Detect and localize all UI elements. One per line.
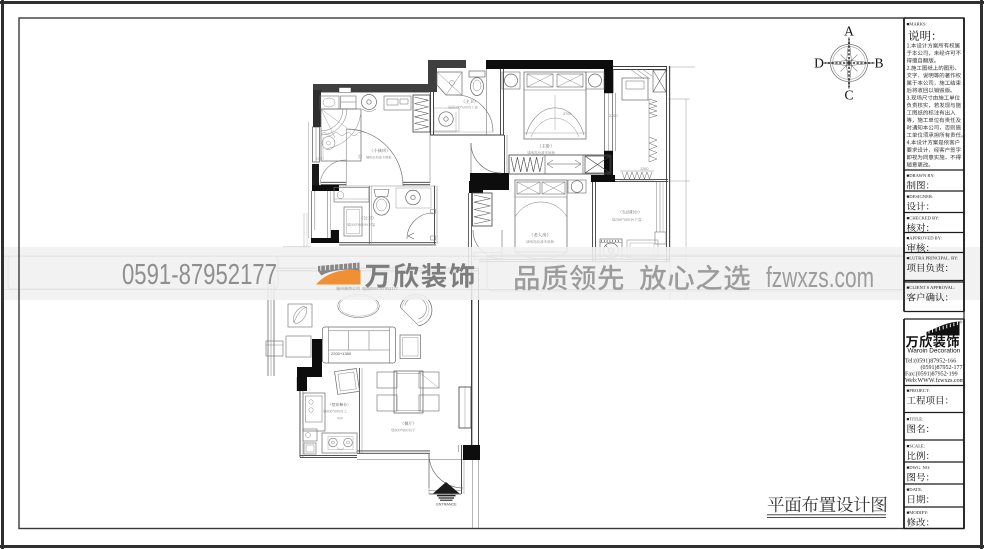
svg-text:Waroin Decoration: Waroin Decoration [908,348,961,355]
svg-text:■SCALE:: ■SCALE: [907,444,926,449]
svg-text:3700: 3700 [563,112,571,116]
svg-text:C: C [844,88,853,103]
svg-text:A: A [844,24,854,39]
svg-text:■DWG. NO:: ■DWG. NO: [907,465,931,470]
svg-text:■PROJECT:: ■PROJECT: [907,388,930,393]
svg-text:®: ® [960,320,963,325]
svg-text:■APPROVED BY:: ■APPROVED BY: [907,236,942,241]
svg-text:■DRAWN BY:: ■DRAWN BY: [907,173,935,178]
svg-text:Fax:(0591)87952-199: Fax:(0591)87952-199 [905,371,958,378]
svg-text:■MARKS:: ■MARKS: [907,22,927,27]
svg-text:■MODIFY:: ■MODIFY: [907,510,929,515]
svg-text:D: D [814,56,824,71]
svg-text:■TITLE:: ■TITLE: [907,417,924,422]
svg-text:2200+1380: 2200+1380 [331,351,352,356]
svg-text:fzwxzs.com: fzwxzs.com [766,262,874,294]
svg-text:Web:WWW.fzwxzs.com: Web:WWW.fzwxzs.com [905,377,965,384]
svg-text:Tel:(0591)87952-166: Tel:(0591)87952-166 [905,358,956,365]
svg-text:■DATE:: ■DATE: [907,487,923,492]
svg-text:■LUTRA PRINCIPAL. BY:: ■LUTRA PRINCIPAL. BY: [907,256,959,261]
svg-text:B: B [874,56,883,71]
svg-text:■DESIGNER:: ■DESIGNER: [907,194,934,199]
svg-text:■CLIENT S APPROVAL:: ■CLIENT S APPROVAL: [907,285,956,290]
svg-text:2200: 2200 [609,114,617,118]
svg-text:(0591)87952-177: (0591)87952-177 [921,364,963,371]
svg-text:ENTRANCE: ENTRANCE [436,503,457,507]
svg-text:1260: 1260 [640,167,648,171]
svg-text:■CHECKED BY:: ■CHECKED BY: [907,216,940,221]
svg-text:0591-87952177: 0591-87952177 [122,259,277,291]
